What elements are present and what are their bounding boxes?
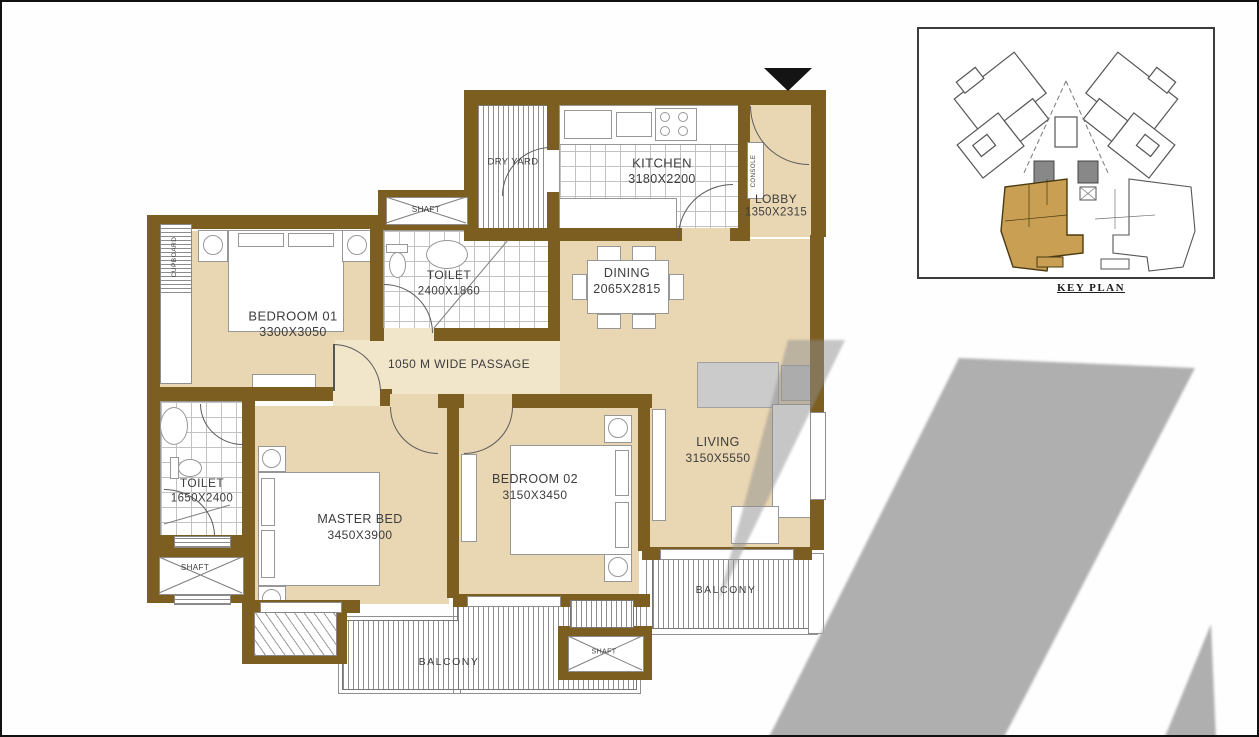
toilet-left-dim: 1650X2400 [171, 493, 233, 505]
armchair [781, 365, 813, 401]
shaft-top-label: SHAFT [412, 206, 440, 214]
wall [370, 224, 383, 334]
master-bed-dim: 3450X3900 [328, 529, 393, 541]
wall [810, 235, 824, 550]
watermark-shape [1164, 624, 1216, 737]
wardrobe [461, 454, 477, 542]
dining-chair [572, 274, 587, 300]
master-bed-label: MASTER BED [317, 513, 402, 526]
ledge-hatch [254, 612, 337, 656]
pillow [288, 233, 334, 247]
entry-arrow-icon [764, 68, 812, 91]
shaft-window-hatch [570, 600, 634, 628]
wc [178, 459, 202, 477]
wall [464, 90, 826, 105]
chaise [772, 404, 814, 518]
bedroom-01-dim: 3300X3050 [259, 326, 327, 339]
toilet-left-label: TOILET [180, 477, 224, 489]
living-label: LIVING [696, 436, 739, 449]
kitchen-drainer [616, 112, 652, 137]
wall [547, 102, 559, 152]
watermark-shape [768, 358, 1195, 737]
burner [678, 126, 688, 136]
wall [147, 215, 160, 393]
balcony-bedrooms-label: BALCONY [419, 657, 480, 668]
toilet-top-label: TOILET [427, 269, 471, 281]
kitchen-label: KITCHEN [632, 157, 692, 170]
toilet-top-dim: 2400X1860 [418, 286, 480, 298]
burner [660, 126, 670, 136]
key-plan-unit [1113, 179, 1195, 271]
kitchen-dim: 3180X2200 [628, 173, 696, 186]
dry-yard-label: DRY YARD [487, 157, 538, 167]
wall [147, 393, 160, 547]
wall [548, 237, 560, 339]
shaft-vent [174, 594, 231, 605]
shaft-bottom-label: SHAFT [592, 649, 617, 656]
wall [464, 228, 559, 241]
floor-plan-sheet: DRY YARD KITCHEN 3180X2200 LOBBY 1350X23… [0, 0, 1259, 737]
wall [638, 394, 650, 551]
key-plan-drawing [919, 29, 1213, 277]
wardrobe-strip [160, 292, 192, 384]
sofa [697, 362, 779, 408]
lamp [203, 235, 223, 255]
living-dim: 3150X5550 [686, 452, 751, 464]
lobby-label: LOBBY [755, 193, 797, 205]
pillow [238, 233, 284, 247]
wall [370, 328, 384, 341]
wash-basin [426, 240, 468, 269]
key-plan-caption: KEY PLAN [966, 282, 1216, 294]
lamp [608, 418, 628, 438]
dining-chair [632, 246, 656, 261]
window [810, 412, 826, 500]
key-plan-inset [917, 27, 1215, 279]
dining-chair [597, 314, 621, 329]
pillow [615, 450, 629, 496]
passage-label: 1050 M WIDE PASSAGE [388, 358, 530, 370]
wall [447, 406, 459, 598]
shaft-left-label: SHAFT [181, 564, 209, 572]
lobby-dim: 1350X2315 [745, 207, 807, 219]
door-gap [464, 394, 512, 408]
lamp [262, 449, 281, 468]
wc [389, 252, 406, 278]
lamp [608, 557, 628, 577]
sliding-door [467, 596, 561, 607]
lamp [347, 235, 367, 255]
bedroom-02-label: BEDROOM 02 [492, 473, 578, 486]
burner [660, 112, 670, 122]
console-label: CONSOLE [751, 155, 757, 188]
burner [678, 112, 688, 122]
bedroom-02-dim: 3150X3450 [503, 489, 568, 501]
kitchen-sink [564, 110, 612, 139]
balcony-edge [808, 553, 824, 634]
dining-chair [597, 246, 621, 261]
sliding-door [660, 549, 794, 560]
wall [512, 394, 652, 408]
balcony-living-label: BALCONY [696, 585, 757, 596]
wall [811, 90, 826, 237]
door-leaf [333, 344, 335, 391]
dining-chair [669, 274, 684, 300]
shaft-vent [174, 536, 231, 548]
tv-unit [652, 409, 666, 521]
coffee-table [731, 506, 779, 544]
wall [730, 228, 750, 241]
dining-chair [632, 314, 656, 329]
wash-basin [160, 407, 188, 445]
door-gap [390, 394, 438, 408]
dining-dim: 2065X2815 [593, 283, 661, 296]
wall [147, 387, 333, 401]
pillow [615, 502, 629, 548]
wall [547, 228, 682, 241]
pillow [261, 478, 275, 526]
dresser [252, 374, 316, 388]
bedroom-01-label: BEDROOM 01 [248, 310, 337, 323]
pillow [261, 530, 275, 578]
wall [434, 328, 560, 341]
cupboard-label: CUPBOARD [172, 237, 179, 278]
dining-label: DINING [604, 267, 650, 280]
kitchen-counter-low [559, 198, 677, 232]
